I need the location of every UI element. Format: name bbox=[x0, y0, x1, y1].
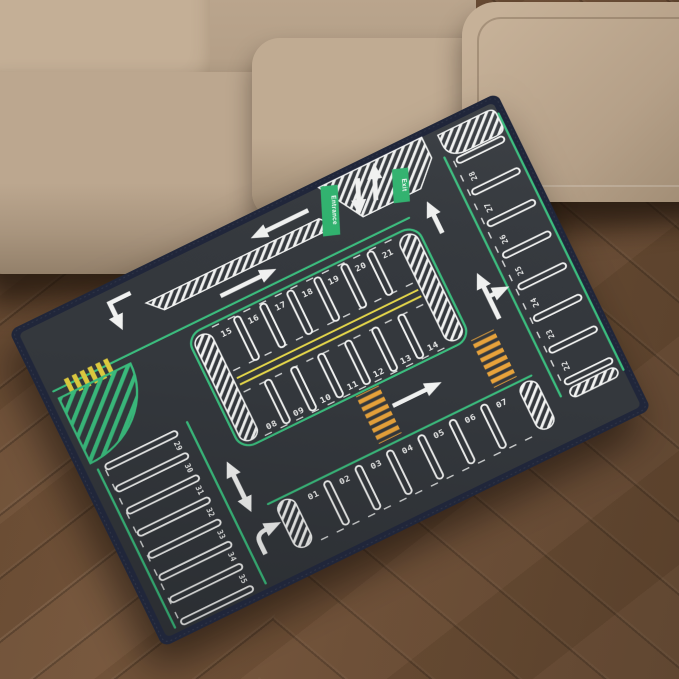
room-scene: Entrance Exit bbox=[0, 0, 679, 679]
